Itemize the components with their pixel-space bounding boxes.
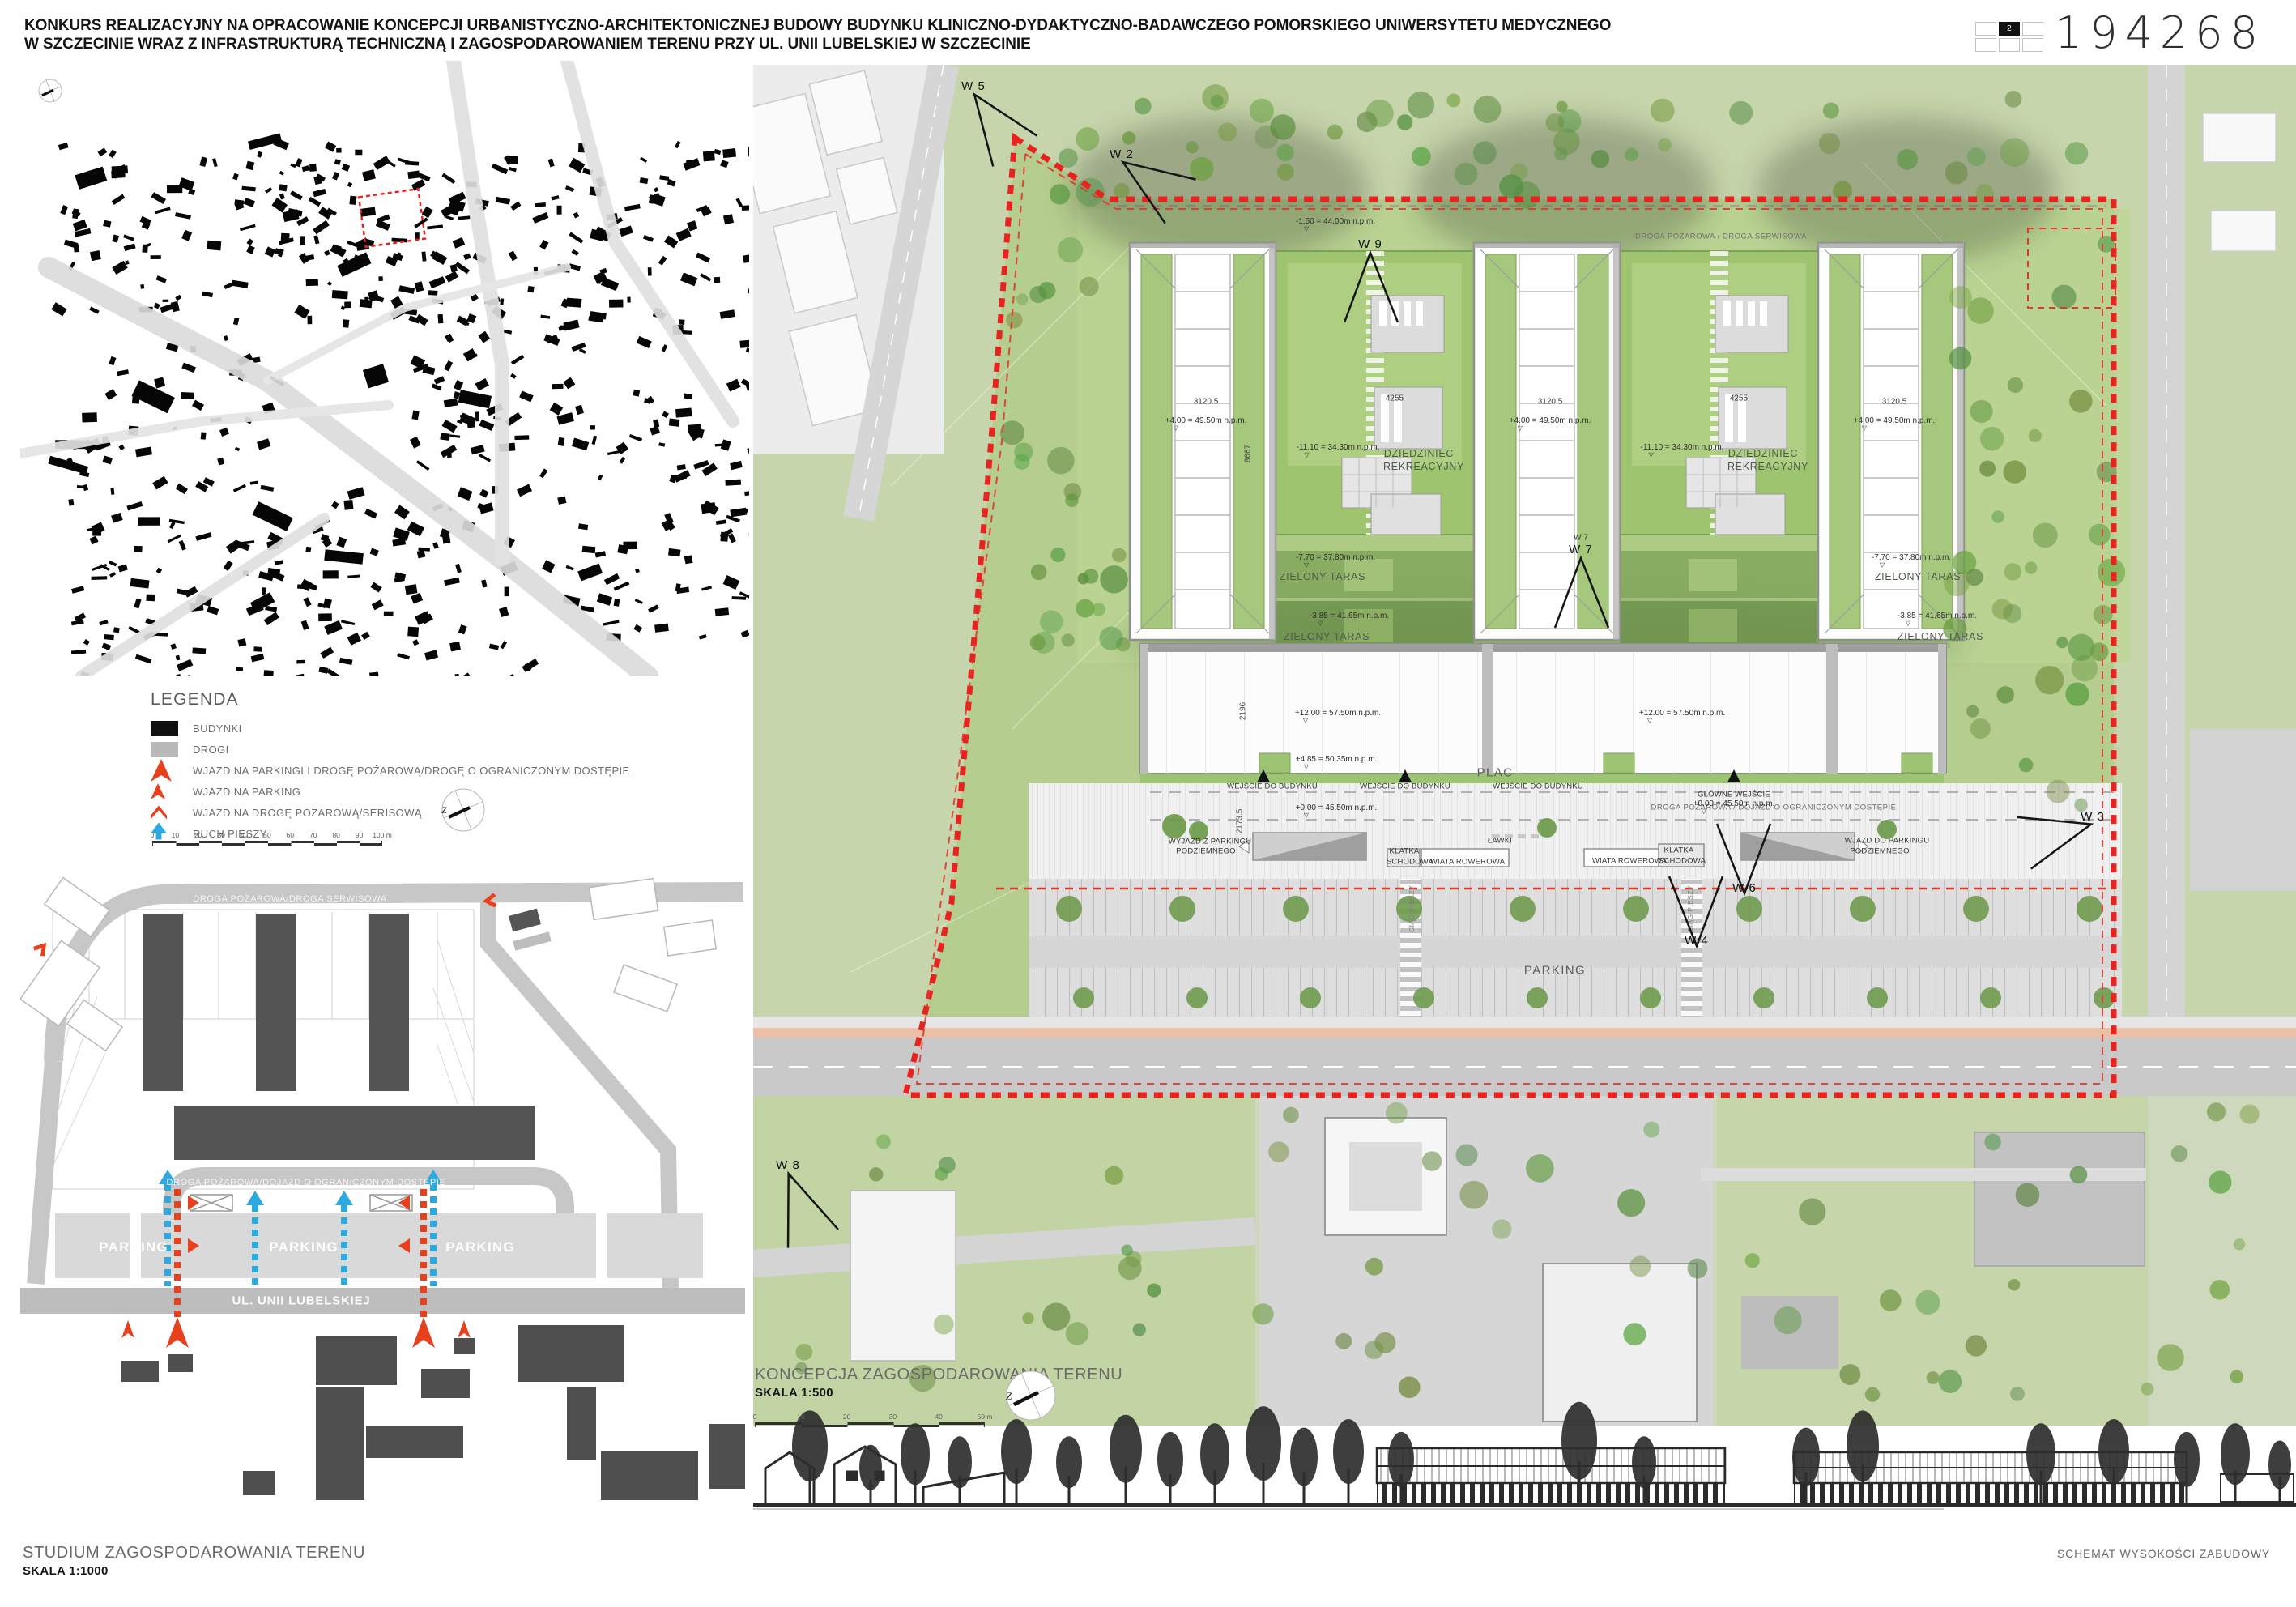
- tower-building-3: [1818, 243, 1964, 640]
- scale-tick: 50: [263, 831, 270, 839]
- legend-item-label: WJAZD NA DROGĘ POŻAROWĄ/SERISOWĄ: [193, 807, 422, 819]
- svg-text:Z: Z: [441, 804, 447, 816]
- master-compass-icon: Z: [1003, 1367, 1059, 1424]
- scale-tick: 10: [797, 1413, 804, 1421]
- competition-board: KONKURS REALIZACYJNY NA OPRACOWANIE KONC…: [0, 0, 2296, 1607]
- courtyard-2: [1620, 251, 1818, 535]
- legend-item-label: WJAZD NA PARKINGI I DROGĘ POŻAROWĄ/DROGĘ…: [193, 765, 630, 777]
- header-line-1: KONKURS REALIZACYJNY NA OPRACOWANIE KONC…: [24, 16, 1928, 35]
- study-plan-caption: STUDIUM ZAGOSPODAROWANIA TERENU SKALA 1:…: [23, 1544, 365, 1578]
- legend-title: LEGENDA: [151, 690, 669, 710]
- scale-tick: 30: [217, 831, 224, 839]
- scale-tick: 40: [935, 1413, 942, 1421]
- legend-item: WJAZD NA DROGĘ POŻAROWĄ/SERISOWĄ: [151, 802, 669, 823]
- sheet-index-grid: 2: [1975, 22, 2043, 52]
- legend-item-label: BUDYNKI: [193, 723, 242, 735]
- sheet-index-cell: 2: [1999, 22, 2020, 36]
- scale-tick: 50 m: [978, 1413, 993, 1421]
- legend-item: WJAZD NA PARKING: [151, 781, 669, 802]
- entry-number-block: 2 194268: [1975, 11, 2265, 55]
- legend-items: BUDYNKIDROGIWJAZD NA PARKINGI I DROGĘ PO…: [151, 718, 669, 844]
- master-scale-bar: 01020304050 m: [755, 1413, 985, 1427]
- sheet-index-cell: [1999, 38, 2020, 52]
- legend: LEGENDA BUDYNKIDROGIWJAZD NA PARKINGI I …: [151, 690, 669, 844]
- sym-red-lg-icon: [151, 759, 180, 782]
- scale-tick: 10: [172, 831, 179, 839]
- scale-tick: 40: [241, 831, 248, 839]
- slab-building: [1140, 644, 1946, 774]
- tower-building-2: [1474, 243, 1620, 640]
- scale-tick: 30: [889, 1413, 897, 1421]
- legend-item: BUDYNKI: [151, 718, 669, 739]
- master-plan-caption: KONCEPCJA ZAGOSPODAROWANIA TERENU SKALA …: [755, 1366, 1122, 1400]
- scale-tick: 70: [309, 831, 317, 839]
- svg-text:Z: Z: [1006, 1390, 1012, 1402]
- legend-scale-bar: 0102030405060708090100 m: [152, 831, 382, 846]
- study-plan-title: STUDIUM ZAGOSPODAROWANIA TERENU: [23, 1544, 365, 1562]
- study-parking-street: [20, 1213, 745, 1314]
- sym-black-icon: [151, 721, 180, 736]
- sheet-index-cell: [2022, 22, 2043, 36]
- master-plan-scale: SKALA 1:500: [755, 1386, 1122, 1400]
- tower-building-1: [1130, 243, 1276, 640]
- sheet-index-cell: [1975, 38, 1996, 52]
- legend-item: WJAZD NA PARKINGI I DROGĘ POŻAROWĄ/DROGĘ…: [151, 760, 669, 781]
- city-figure-ground-map: [20, 61, 749, 676]
- sym-red-ch-icon: [151, 806, 180, 820]
- scale-tick: 60: [287, 831, 294, 839]
- sym-red-sm-icon: [151, 783, 180, 799]
- scale-tick: 0: [753, 1413, 757, 1421]
- entry-number: 194268: [2055, 11, 2265, 55]
- scale-tick: 20: [843, 1413, 850, 1421]
- elevation-caption: SCHEMAT WYSOKOŚCI ZABUDOWY: [2057, 1547, 2270, 1560]
- study-plan-scale: SKALA 1:1000: [23, 1564, 365, 1578]
- context-northwest: [753, 65, 944, 518]
- legend-item-label: DROGI: [193, 744, 229, 756]
- legend-compass-icon: Z: [437, 784, 489, 836]
- master-site-plan: [753, 65, 2296, 1426]
- scale-tick: 100 m: [373, 831, 392, 839]
- sheet-index-cell: [1975, 22, 1996, 36]
- board-header: KONKURS REALIZACYJNY NA OPRACOWANIE KONC…: [24, 16, 1928, 53]
- sketch-buildings: [1377, 1448, 2294, 1503]
- scale-tick: 20: [194, 831, 202, 839]
- sym-gray-icon: [151, 742, 180, 757]
- scale-tick: 80: [332, 831, 339, 839]
- sheet-index-cell: [2022, 38, 2043, 52]
- legend-item-label: WJAZD NA PARKING: [193, 786, 300, 798]
- courtyard-1: [1276, 251, 1474, 535]
- legend-item: DROGI: [151, 739, 669, 760]
- header-line-2: W SZCZECINIE WRAZ Z INFRASTRUKTURĄ TECHN…: [24, 35, 1928, 53]
- master-plan-title: KONCEPCJA ZAGOSPODAROWANIA TERENU: [755, 1366, 1122, 1384]
- scale-tick: 90: [356, 831, 363, 839]
- study-site-plan: [20, 868, 749, 1565]
- scale-tick: 0: [151, 831, 155, 839]
